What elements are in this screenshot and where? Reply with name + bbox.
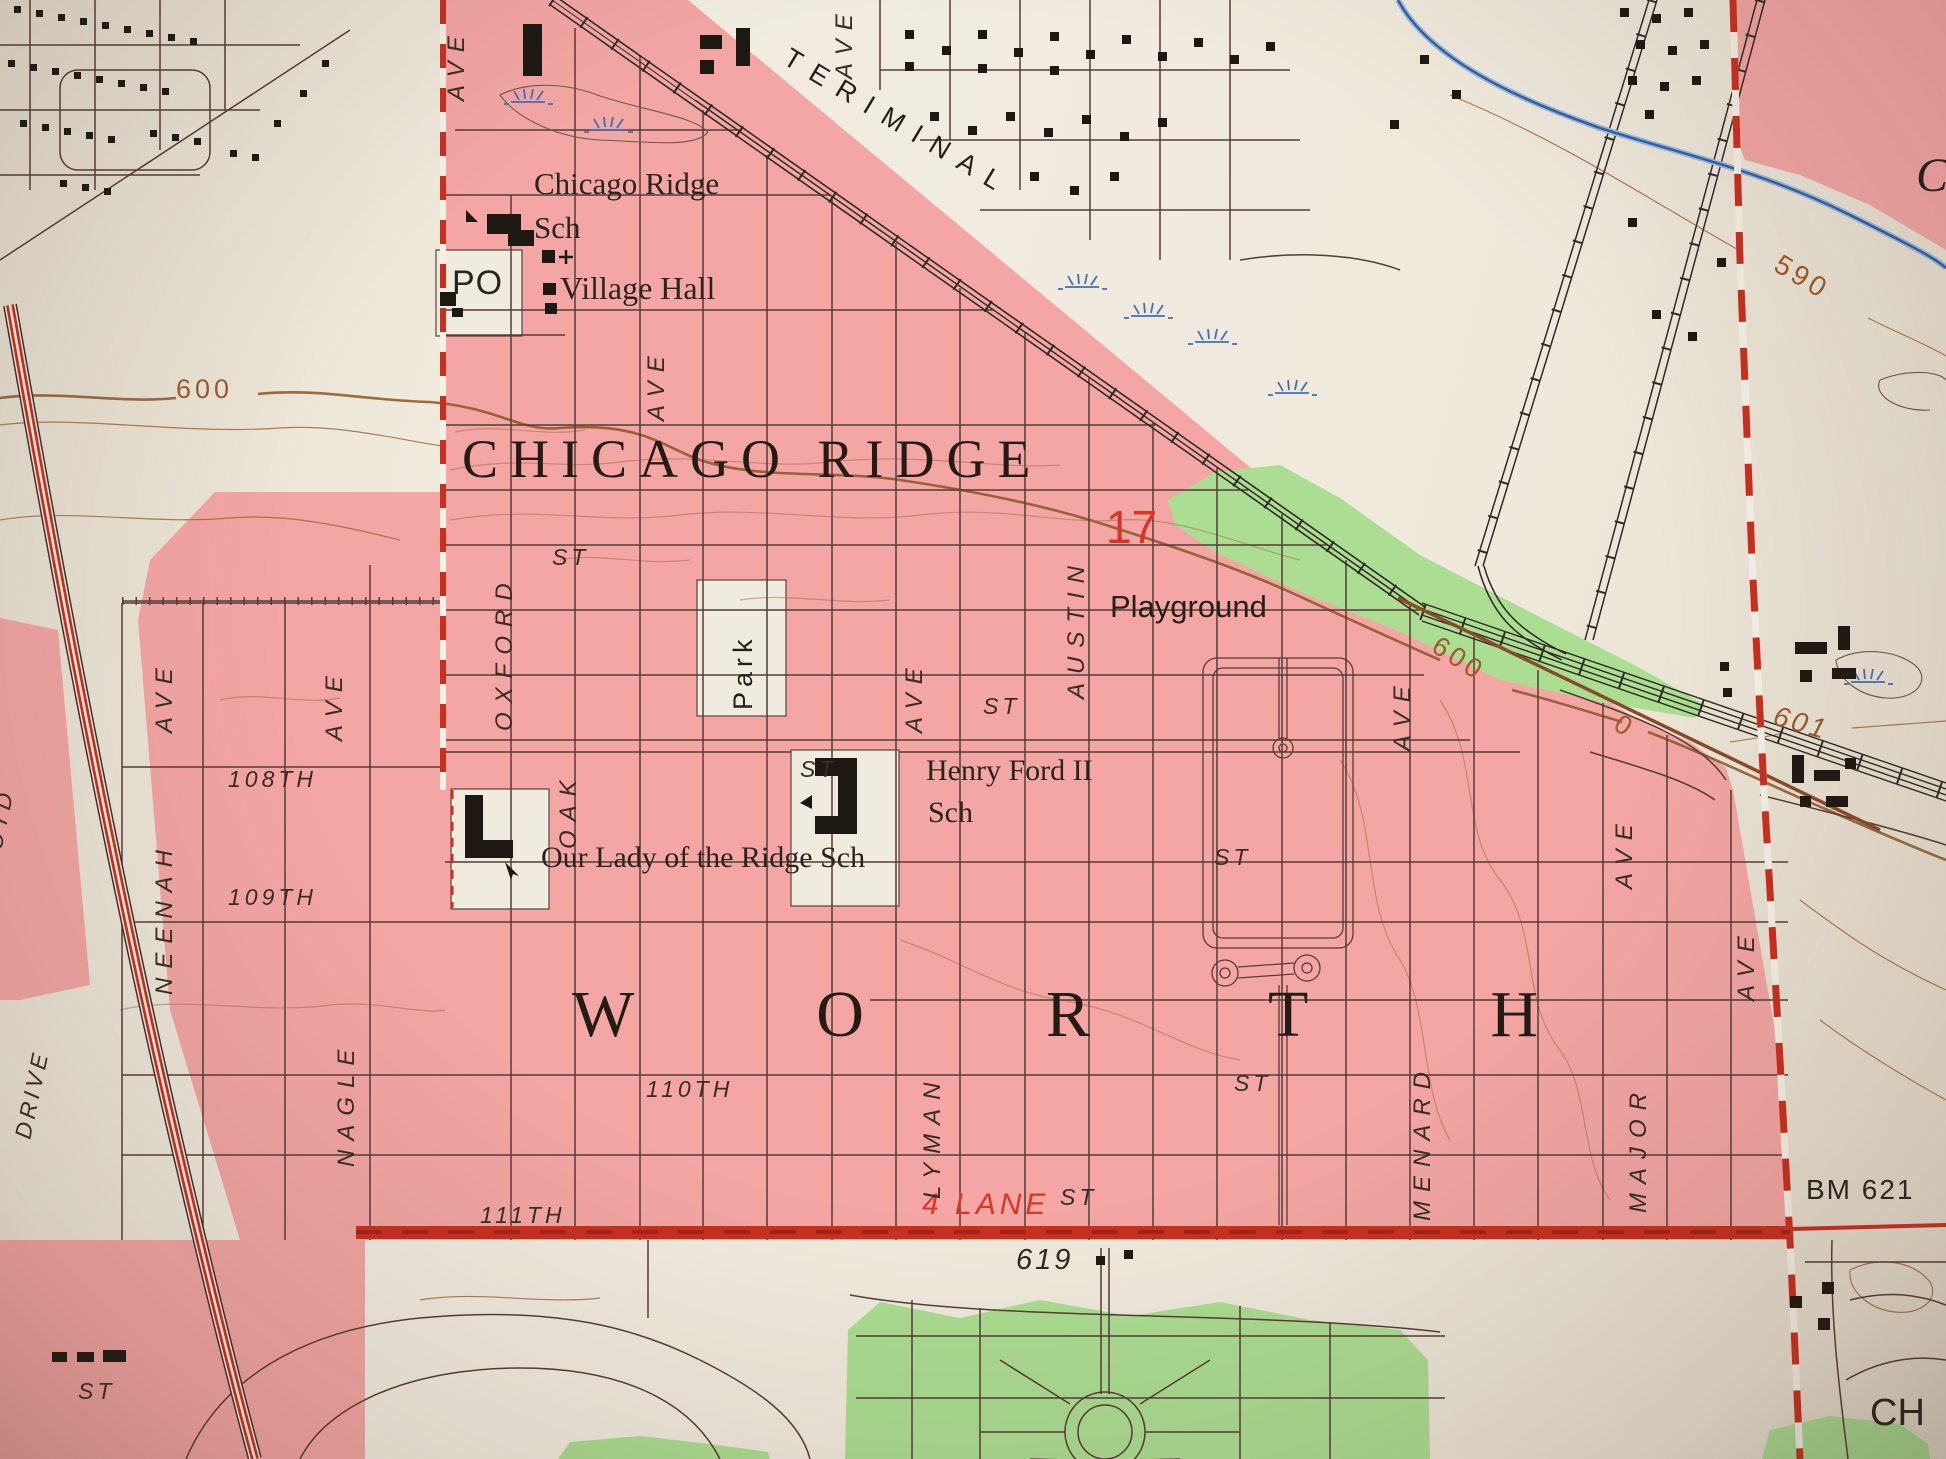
street-label-st-5: ST (1234, 1072, 1271, 1095)
railroad-branch (1475, 0, 1765, 660)
municipality-label-chicago-ridge: CHICAGO RIDGE (462, 432, 1043, 486)
street-label-nagle: NAGLE (335, 1041, 359, 1167)
henry-ford-label-line2: Sch (928, 798, 973, 828)
topographic-map: TERIMINAL Chicago Ridge Sch PO Village H… (0, 0, 1946, 1459)
street-label-109th: 109TH (228, 886, 317, 909)
partial-label-c: C (1916, 152, 1946, 200)
street-label-ave-playground: AVE (1391, 677, 1415, 751)
street-label-ave-west1: AVE (153, 659, 177, 733)
street-label-st-7: ST (78, 1380, 115, 1403)
street-label-ave-top-mid: AVE (833, 5, 857, 79)
road-111th-red (356, 1225, 1946, 1239)
street-label-110th: 110TH (646, 1078, 733, 1101)
partial-label-ch: CH (1870, 1394, 1925, 1432)
our-lady-school-label: Our Lady of the Ridge Sch (541, 843, 865, 873)
street-label-111th: 111TH (480, 1204, 566, 1227)
street-label-st-1: ST (552, 546, 589, 569)
playground-label: Playground (1110, 591, 1267, 622)
contour-label-600-west: 600 (176, 376, 233, 403)
street-label-lyman: LYMAN (921, 1074, 945, 1199)
street-label-ave-mid: AVE (903, 659, 927, 733)
street-label-oxford: OXFORD (493, 574, 517, 731)
street-label-st-2: ST (800, 758, 837, 781)
school-label-line1: Chicago Ridge (534, 168, 719, 199)
park-label: Park (730, 634, 757, 710)
street-label-ave-top-west: AVE (445, 27, 469, 101)
street-label-austin: AUSTIN (1065, 557, 1089, 699)
street-label-ave-cr: AVE (645, 347, 669, 421)
street-label-108th: 108TH (228, 768, 317, 791)
street-label-ave-east2: AVE (1735, 927, 1759, 1001)
route-17-label: 17 (1106, 504, 1157, 550)
street-label-ave-east1: AVE (1613, 815, 1637, 889)
spot-elevation-619: 619 (1016, 1246, 1073, 1275)
municipality-label-worth: WORTH (572, 982, 1720, 1048)
street-label-ave-west2: AVE (323, 667, 347, 741)
street-label-menard: MENARD (1411, 1063, 1435, 1221)
street-label-st-3: ST (1214, 846, 1251, 869)
street-label-neenah: NEENAH (153, 841, 177, 995)
benchmark-label: BM 621 (1806, 1176, 1915, 1204)
urban-area-pink (0, 0, 1946, 1459)
street-label-st-4: ST (983, 695, 1020, 718)
street-label-major: MAJOR (1627, 1084, 1651, 1213)
street-label-oak: OAK (557, 771, 581, 849)
map-canvas (0, 0, 1946, 1459)
street-label-st-6: ST (1060, 1186, 1097, 1209)
village-hall-label: Village Hall (560, 272, 715, 304)
post-office-label: PO (452, 266, 503, 300)
henry-ford-label-line1: Henry Ford II (926, 756, 1093, 786)
school-label-line2: Sch (534, 212, 581, 243)
